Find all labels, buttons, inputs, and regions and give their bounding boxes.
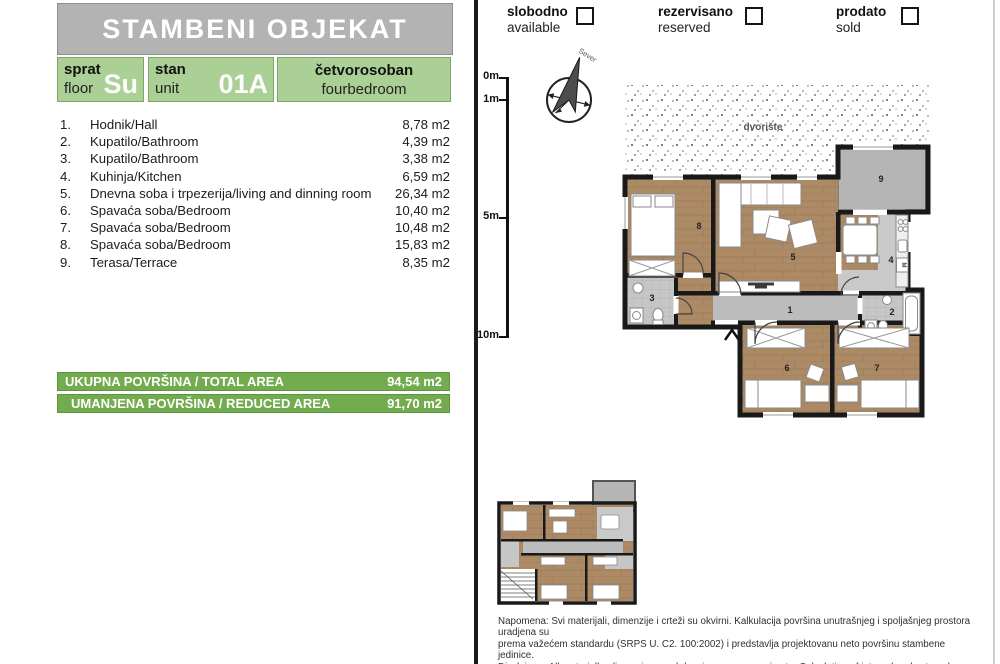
unit-label-en: unit [155,80,179,97]
room-number-bedroom8: 8 [696,221,701,231]
total-area-label: UKUPNA POVRŠINA / TOTAL AREA [65,373,284,390]
disclaimer-line: prema važećem standardu (SRPS U. C2. 100… [498,639,978,662]
disclaimer-line: Napomena: Svi materijali, dimenzije i cr… [498,616,978,639]
total-area-value: 94,54 m2 [387,373,442,390]
room-number-bath-3: 3 [649,293,654,303]
scale-bar [506,77,509,338]
scale-tick-5m [499,217,507,219]
scale-label-0m: 0m [475,70,499,82]
compass-rose-icon: Sever [532,40,608,138]
unit-value: 01A [218,69,268,100]
type-box: četvorosoban fourbedroom [277,57,451,102]
unit-label-sr: stan [155,61,186,78]
entry-arrow-icon [725,330,739,340]
room-row: 3.Kupatilo/Bathroom3,38 m2 [57,150,450,167]
page-edge-line [993,0,995,664]
sold-checkbox[interactable] [901,7,919,25]
disclaimer-text: Napomena: Svi materijali, dimenzije i cr… [498,616,978,664]
floor-value: Su [103,69,138,100]
scale-label-5m: 5m [475,210,499,222]
scale-tick-1m [499,99,507,101]
scale-label-10m: 10m [475,329,499,341]
room-row: 1.Hodnik/Hall8,78 m2 [57,116,450,133]
room-number-bedroom7: 7 [874,363,879,373]
scale-label-1m: 1m [475,93,499,105]
room-number-terrace: 9 [878,174,883,184]
available-checkbox[interactable] [576,7,594,25]
room-row: 2.Kupatilo/Bathroom4,39 m2 [57,133,450,150]
room-number-bath-2: 2 [889,307,894,317]
room-row: 6.Spavaća soba/Bedroom10,40 m2 [57,202,450,219]
room-list: 1.Hodnik/Hall8,78 m2 2.Kupatilo/Bathroom… [57,116,450,271]
room-number-living: 5 [790,252,795,262]
main-floor-plan: dvorište [615,82,937,418]
scale-tick-10m [499,336,507,338]
reserved-checkbox[interactable] [745,7,763,25]
room-row: 5.Dnevna soba i trpezerija/living and di… [57,185,450,202]
room-row: 4.Kuhinja/Kitchen6,59 m2 [57,168,450,185]
reduced-area-bar: UMANJENA POVRŠINA / REDUCED AREA 91,70 m… [57,394,450,413]
unit-box: stan unit 01A [148,57,274,102]
room-number-bedroom6: 6 [784,363,789,373]
floor-label-en: floor [64,80,93,97]
legend-available: slobodno available [507,4,568,36]
scale-tick-0m [499,77,507,79]
floor-label-sr: sprat [64,61,101,78]
floor-plan-sheet: STAMBENI OBJEKAT sprat floor Su stan uni… [0,0,1000,664]
type-label-sr: četvorosoban [278,62,450,79]
reduced-area-value: 91,70 m2 [387,395,442,412]
legend-sold: prodato sold [836,4,886,36]
total-area-bar: UKUPNA POVRŠINA / TOTAL AREA 94,54 m2 [57,372,450,391]
room-number-kitchen: 4 [888,255,893,265]
compass-north-label: Sever [577,46,599,64]
overview-floor-plan [493,479,641,609]
room-row: 8.Spavaća soba/Bedroom15,83 m2 [57,236,450,253]
type-label-en: fourbedroom [278,81,450,98]
room-row: 7.Spavaća soba/Bedroom10,48 m2 [57,219,450,236]
washer-label: M [900,263,906,268]
room-number-hallway: 1 [787,305,792,315]
legend-reserved: rezervisano reserved [658,4,733,36]
room-row: 9.Terasa/Terrace8,35 m2 [57,254,450,271]
page-title: STAMBENI OBJEKAT [57,3,453,55]
floor-box: sprat floor Su [57,57,144,102]
courtyard-label: dvorište [744,122,783,133]
reduced-area-label: UMANJENA POVRŠINA / REDUCED AREA [71,395,330,412]
